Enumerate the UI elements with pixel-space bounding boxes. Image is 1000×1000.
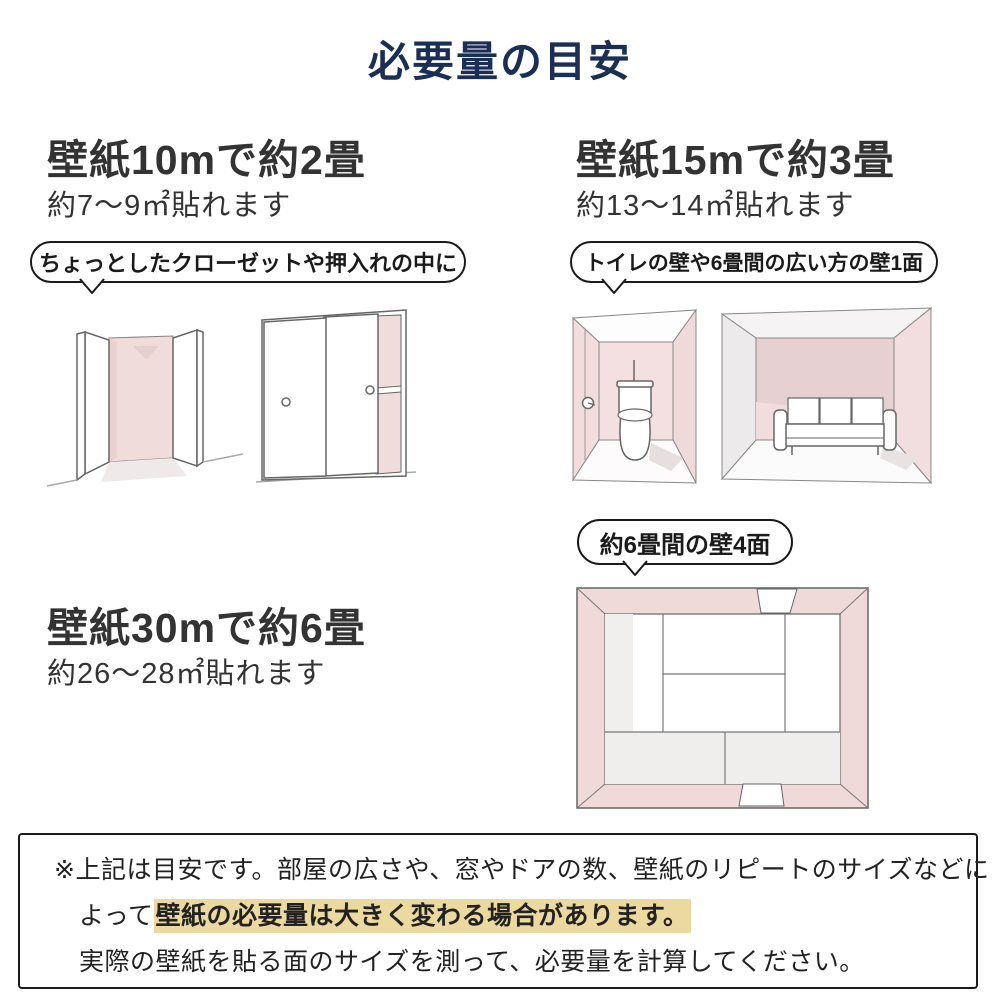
section-30m-subtext: 約26〜28㎡貼れます bbox=[47, 650, 326, 692]
section-10m-subtext: 約7〜9㎡貼れます bbox=[47, 182, 291, 224]
toilet-room-illustration bbox=[571, 308, 698, 485]
note-line-2: よって壁紙の必要量は大きく変わる場合があります。 bbox=[79, 893, 976, 939]
note-line-3: 実際の壁紙を貼る面のサイズを測って、必要量を計算してください。 bbox=[79, 939, 976, 985]
section-10m-bubble: ちょっとしたクローゼットや押入れの中に bbox=[30, 241, 466, 283]
section-15m-subtext: 約13〜14㎡貼れます bbox=[576, 182, 855, 224]
section-15m-bubble: トイレの壁や6畳間の広い方の壁1面 bbox=[570, 241, 938, 283]
page-title: 必要量の目安 bbox=[0, 28, 1000, 89]
section-30m-bubble-label: 約6畳間の壁4面 bbox=[600, 525, 771, 560]
section-10m-bubble-label: ちょっとしたクローゼットや押入れの中に bbox=[39, 246, 457, 278]
section-15m-bubble-label: トイレの壁や6畳間の広い方の壁1面 bbox=[585, 247, 923, 277]
note-line-2-prefix: よって bbox=[79, 902, 154, 930]
sliding-closet-illustration bbox=[256, 306, 416, 486]
bubble-tail bbox=[621, 560, 649, 577]
disclaimer-note-box: ※上記は目安です。部屋の広さや、窓やドアの数、壁紙のリピートのサイズなどに よっ… bbox=[18, 833, 978, 989]
bubble-tail bbox=[78, 278, 106, 295]
section-30m-bubble: 約6畳間の壁4面 bbox=[577, 519, 793, 565]
note-line-2-highlight: 壁紙の必要量は大きく変わる場合があります。 bbox=[154, 899, 691, 933]
section-15m-heading: 壁紙15mで約3畳 bbox=[576, 126, 895, 186]
open-closet-illustration bbox=[45, 316, 245, 490]
section-10m-heading: 壁紙10mで約2畳 bbox=[47, 126, 366, 186]
wallpaper-quantity-guide: 必要量の目安 壁紙10mで約2畳 約7〜9㎡貼れます ちょっとしたクローゼットや… bbox=[0, 0, 1000, 1000]
section-30m-heading: 壁紙30mで約6畳 bbox=[47, 594, 366, 654]
sofa-room-illustration bbox=[720, 306, 933, 485]
bubble-tail bbox=[600, 278, 628, 295]
tatami-room-top-illustration bbox=[575, 586, 870, 810]
note-line-1: ※上記は目安です。部屋の広さや、窓やドアの数、壁紙のリピートのサイズなどに bbox=[54, 847, 976, 893]
